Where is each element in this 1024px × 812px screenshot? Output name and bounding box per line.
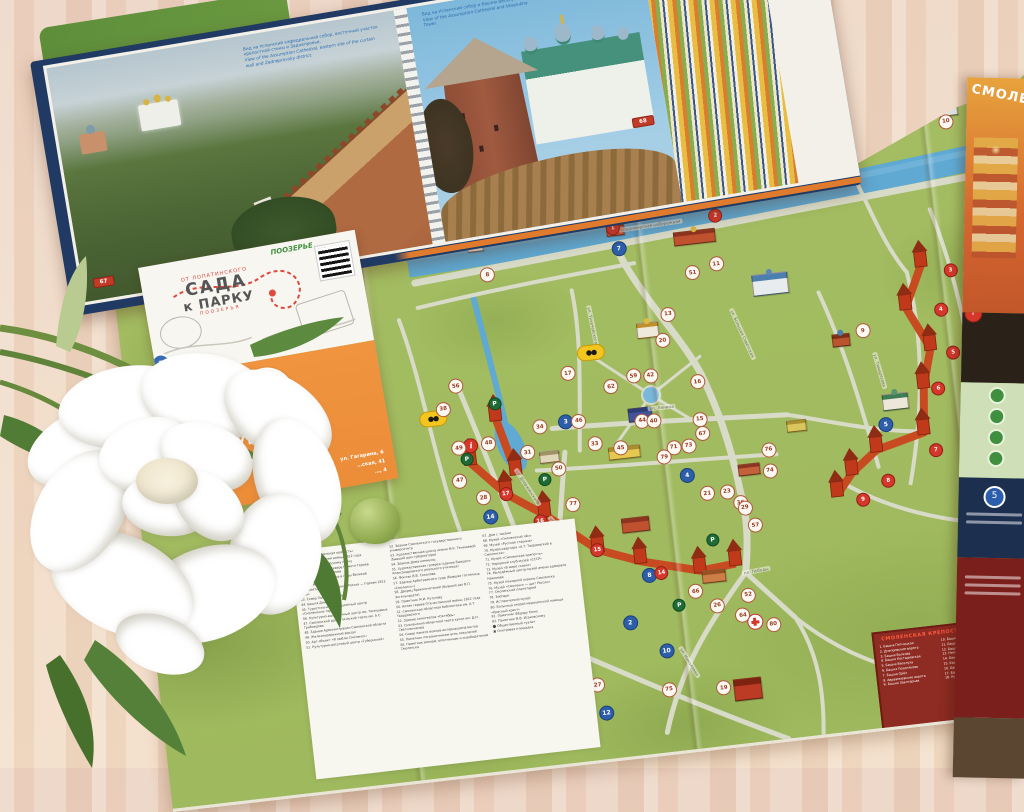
wall-tower bbox=[841, 447, 860, 476]
building-illustration bbox=[737, 462, 760, 476]
peony-flower bbox=[18, 348, 363, 698]
map-cover-title: СМОЛЕНСК bbox=[970, 82, 1024, 110]
legend-column-2: 52. Здание Смоленского государственного … bbox=[389, 534, 502, 763]
info-icon: i bbox=[964, 312, 982, 322]
flower-center bbox=[136, 458, 198, 504]
social-icon bbox=[987, 450, 1004, 467]
legend-column-3: 67. Дом с часами68. Музей «Смоленский лё… bbox=[482, 524, 595, 753]
church-illustration bbox=[832, 332, 851, 347]
cover-badge: 5 bbox=[983, 486, 1005, 508]
fortress-legend-col1: 1. Башня Пятницкая2. Днепровские ворота3… bbox=[879, 638, 941, 687]
church-illustration bbox=[751, 270, 789, 296]
guidebook-right-photo: Вид на Успенский собор и башню Веселуха.… bbox=[406, 0, 682, 242]
peony-bud bbox=[350, 498, 400, 544]
social-icon bbox=[988, 387, 1005, 404]
photo-scene: { "book": { "left_page": { "caption_ru":… bbox=[0, 0, 1024, 768]
building-illustration bbox=[785, 418, 806, 432]
qr-code bbox=[315, 241, 354, 280]
building-illustration bbox=[701, 569, 726, 585]
church-illustration bbox=[882, 391, 910, 411]
wall-tower bbox=[910, 239, 929, 268]
building-illustration bbox=[620, 515, 650, 533]
social-icon bbox=[988, 408, 1005, 425]
social-icon bbox=[987, 429, 1004, 446]
building-illustration bbox=[732, 676, 762, 701]
cover-cathedral-illustration bbox=[972, 137, 1019, 258]
